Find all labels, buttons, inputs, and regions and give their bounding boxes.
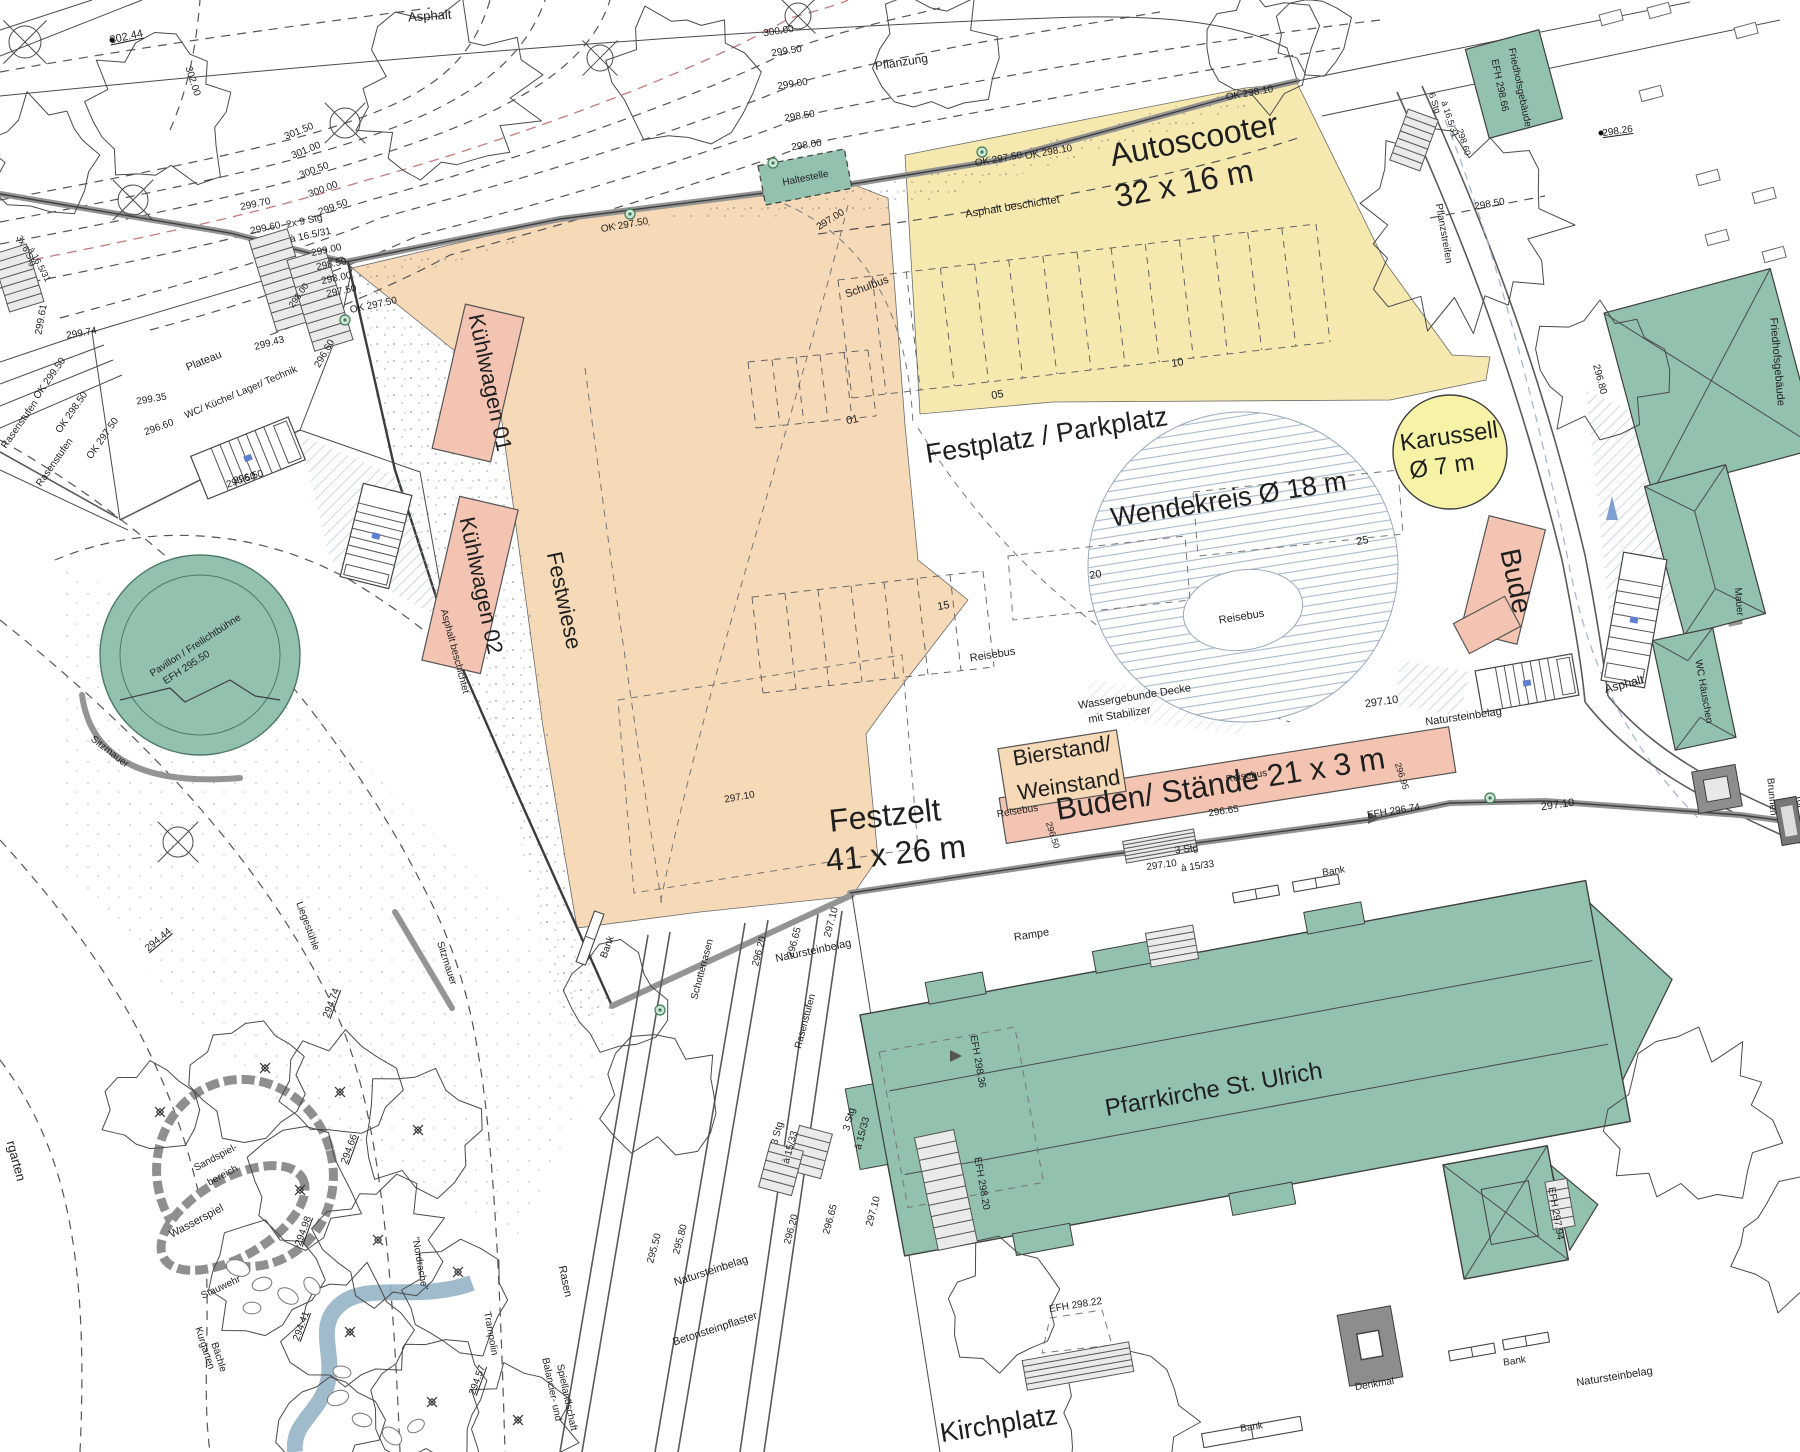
label-25-56: 25: [1355, 534, 1369, 548]
label-10-53: 10: [1170, 356, 1184, 370]
label-05-52: 05: [990, 388, 1004, 402]
label-15-54: 15: [936, 599, 950, 613]
wendekreis-circle: [1088, 412, 1398, 722]
bollard-5: [1485, 793, 1495, 803]
label-01-51: 01: [845, 413, 859, 427]
site-plan-canvas: 302.44Asphalt302.00301.50301.00300.50300…: [0, 0, 1800, 1452]
rock-3: [243, 1302, 261, 1314]
brunnen: [1692, 764, 1743, 813]
label-20-55: 20: [1088, 568, 1102, 582]
bollard-4: [655, 1005, 665, 1015]
label-asphalt-1: Asphalt: [408, 6, 453, 24]
bollard-0: [768, 158, 778, 168]
site-plan: 302.44Asphalt302.00301.50301.00300.50300…: [0, 0, 1800, 1452]
bollard-3: [340, 315, 350, 325]
